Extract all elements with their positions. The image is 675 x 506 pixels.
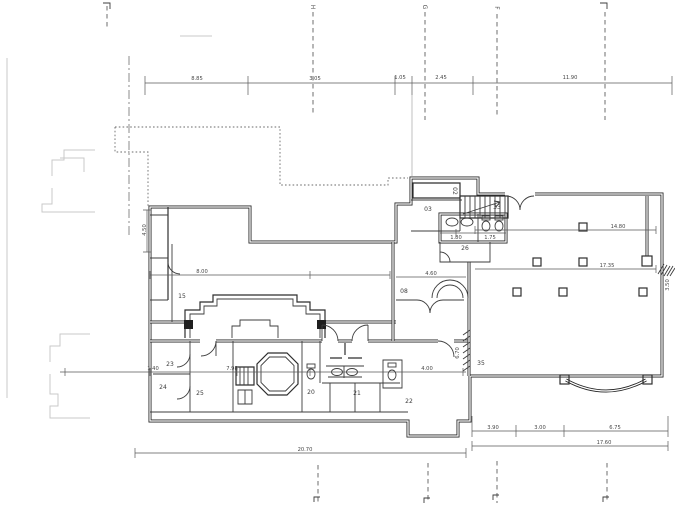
sink-icon bbox=[446, 218, 458, 226]
stage-pier-right bbox=[317, 320, 326, 329]
labels: H G F 8.85 3.05 1.05 2.45 11.90 02 03 33… bbox=[142, 5, 671, 453]
dim-top-1: 8.85 bbox=[191, 76, 203, 82]
room-label-15: 15 bbox=[178, 293, 186, 300]
column-icon bbox=[559, 288, 567, 296]
dim-bottom-right-3: 6.75 bbox=[609, 425, 621, 431]
dim-top-3: 1.05 bbox=[394, 75, 406, 81]
column-icon bbox=[639, 288, 647, 296]
dim-left-vertical: 4.50 bbox=[142, 224, 148, 236]
grid-hook-top-left bbox=[103, 3, 110, 9]
floor-plan-canvas: H G F 8.85 3.05 1.05 2.45 11.90 02 03 33… bbox=[0, 0, 675, 506]
octagon-feature bbox=[257, 353, 298, 395]
dim-bottom-right-1: 3.90 bbox=[487, 425, 499, 431]
steps-icon bbox=[236, 367, 254, 385]
dim-top-4: 2.45 bbox=[435, 75, 447, 81]
grid-hook-bottom-2 bbox=[424, 498, 430, 503]
grid-hook-bottom-1 bbox=[314, 497, 320, 502]
hatch-marks bbox=[463, 264, 675, 371]
dim-corridor-upper: 4.60 bbox=[425, 271, 437, 277]
floor-plan-page: H G F 8.85 3.05 1.05 2.45 11.90 02 03 33… bbox=[0, 0, 675, 506]
room-label-03: 03 bbox=[424, 206, 432, 213]
toilet-tank-icon bbox=[388, 363, 396, 367]
room-label-24: 24 bbox=[159, 384, 167, 391]
toilet-tank-icon bbox=[307, 364, 315, 368]
room-label-21: 21 bbox=[353, 390, 361, 397]
room-label-35: 35 bbox=[477, 360, 485, 367]
room-label-08: 08 bbox=[400, 288, 408, 295]
room-label-22: 22 bbox=[405, 398, 413, 405]
dim-strip-left: 7.98 bbox=[226, 366, 238, 372]
room-label-26: 26 bbox=[461, 245, 469, 252]
stage-platform bbox=[184, 295, 326, 338]
grid-letter-1: H bbox=[309, 5, 316, 10]
left-closets bbox=[150, 207, 180, 322]
room-label-20: 20 bbox=[307, 389, 315, 396]
dim-corridor-lower: 4.00 bbox=[421, 366, 433, 372]
column-icon bbox=[513, 288, 521, 296]
overhang-outline bbox=[115, 127, 408, 207]
grid-lines bbox=[103, 3, 609, 503]
room-label-25: 25 bbox=[196, 390, 204, 397]
dim-bottom-right-2: 3.00 bbox=[534, 425, 546, 431]
dim-right-vertical: 3.50 bbox=[665, 279, 671, 291]
column-icon bbox=[533, 258, 541, 266]
sink-icon bbox=[461, 218, 473, 226]
dim-top-5: 11.90 bbox=[563, 75, 578, 81]
grid-hook-bottom-3 bbox=[493, 495, 499, 500]
dim-hall-upper: 14.80 bbox=[611, 224, 626, 230]
dim-strip-small: 1.40 bbox=[147, 366, 159, 372]
toilet-icon bbox=[388, 370, 396, 380]
top-dimension-line bbox=[145, 76, 672, 176]
hall-columns bbox=[513, 223, 652, 296]
room-label-33: 33 bbox=[493, 204, 501, 211]
scan-artifacts bbox=[7, 36, 212, 418]
bottom-band bbox=[153, 341, 402, 412]
dim-lounge: 8.00 bbox=[196, 269, 208, 275]
dim-corridor-vertical: 6.70 bbox=[455, 347, 461, 359]
dim-wc-left: 1.80 bbox=[450, 235, 462, 241]
toilet-icon bbox=[307, 369, 315, 379]
grid-hook-top-right bbox=[600, 3, 607, 9]
dim-bottom-left-total: 20.70 bbox=[298, 447, 313, 453]
grid-letter-2: G bbox=[421, 5, 428, 10]
dim-hall-lower: 17.35 bbox=[600, 263, 615, 269]
room-label-23: 23 bbox=[166, 361, 174, 368]
room-label-02: 02 bbox=[451, 187, 458, 195]
column-icon bbox=[579, 258, 587, 266]
dim-bottom-right-total: 17.60 bbox=[597, 440, 612, 446]
dim-top-2: 3.05 bbox=[309, 76, 321, 82]
toilet-icon bbox=[495, 221, 503, 231]
column-icon bbox=[642, 256, 652, 266]
dim-wc-right: 1.75 bbox=[484, 235, 496, 241]
grid-letter-3: F bbox=[493, 6, 500, 10]
stage-pier-left bbox=[184, 320, 193, 329]
grid-hook-bottom-4 bbox=[603, 497, 609, 502]
toilet-icon bbox=[482, 221, 490, 231]
